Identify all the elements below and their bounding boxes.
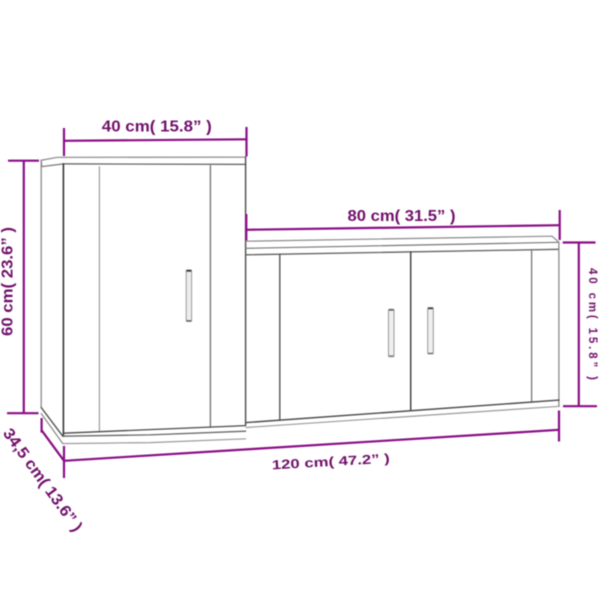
svg-text:40 cm( 15.8” ): 40 cm( 15.8” ) xyxy=(102,119,212,136)
svg-text:60 cm( 23.6” ): 60 cm( 23.6” ) xyxy=(0,227,17,336)
svg-text:80 cm( 31.5” ): 80 cm( 31.5” ) xyxy=(348,208,456,225)
